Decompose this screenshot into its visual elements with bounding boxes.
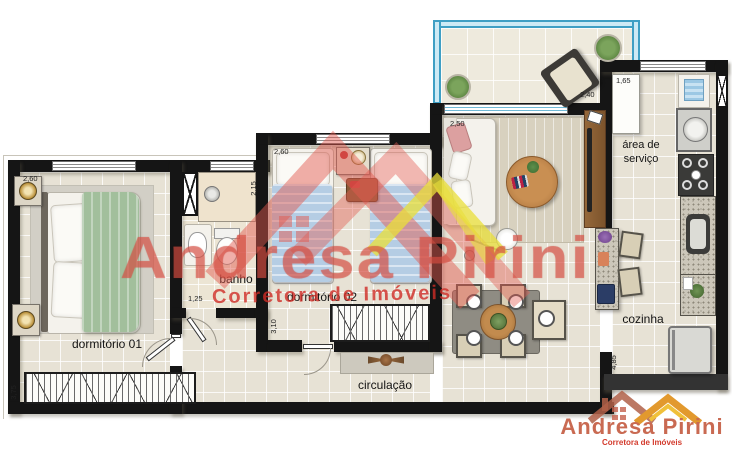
logo-roof-icon: [0, 0, 732, 455]
logo-tagline: Corretora de Imóveis: [552, 438, 732, 447]
logo-name: Andresa Pirini: [552, 414, 732, 440]
floorplan-image: dormitório 01 banho dormitório 02 circul…: [0, 0, 732, 455]
